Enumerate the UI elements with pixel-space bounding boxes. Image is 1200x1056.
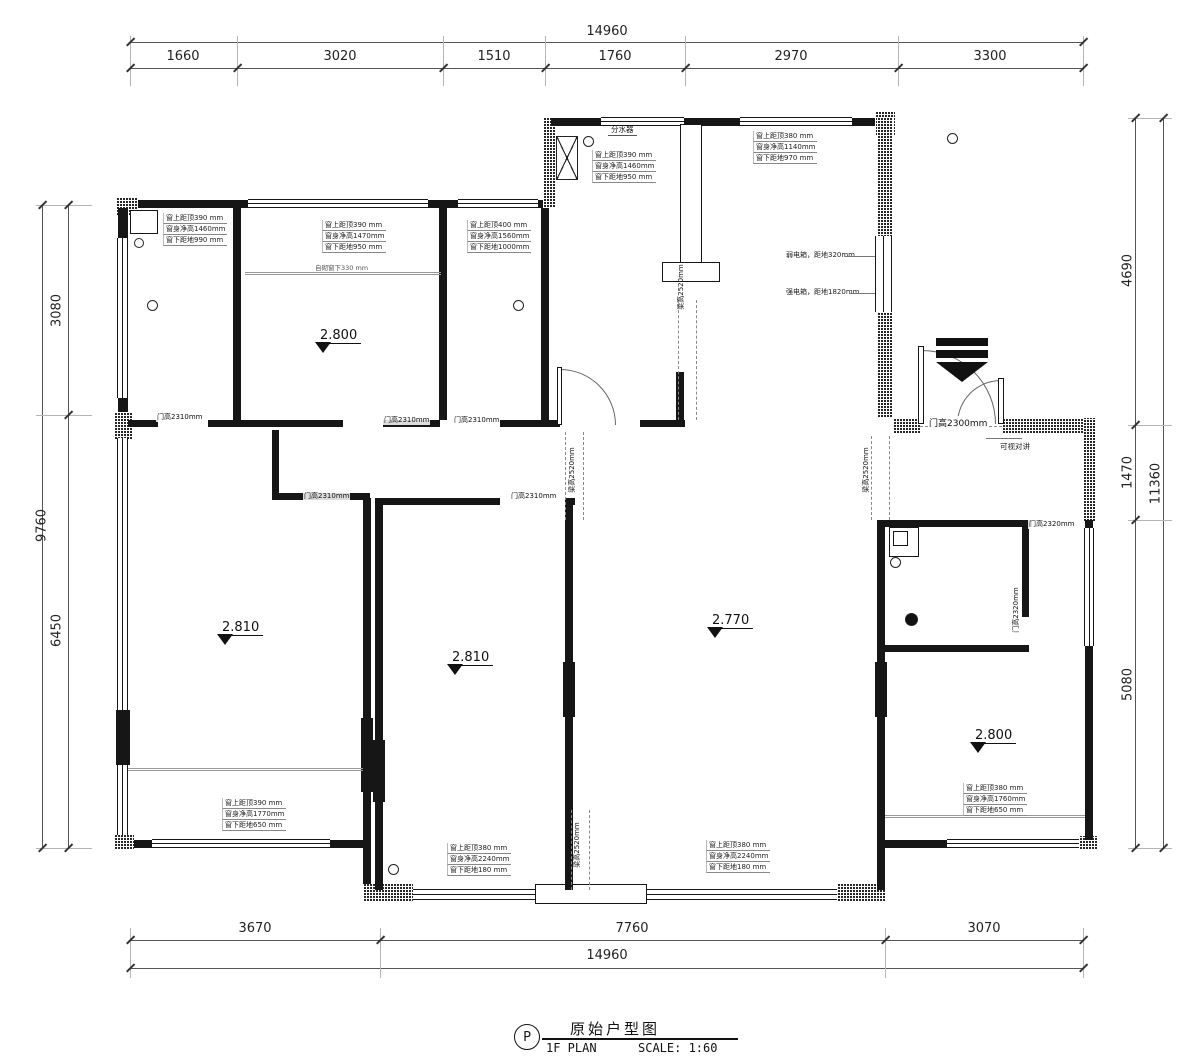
window-bedroom-bottom xyxy=(947,839,1081,848)
wall-hallway xyxy=(640,420,685,427)
note-line: 窗身净高1560mm xyxy=(467,231,531,242)
ext-line xyxy=(237,36,238,86)
note-line: 窗上距顶400 mm xyxy=(467,220,531,231)
window-mid-bottom-2 xyxy=(647,889,837,900)
note-line: 窗下距地650 mm xyxy=(222,820,286,831)
light-fixture-icon xyxy=(513,300,524,311)
wall-kitchen-left xyxy=(543,118,555,208)
beam-dash xyxy=(678,300,679,420)
wall-hallway xyxy=(208,420,343,427)
note-line: 窗下距地180 mm xyxy=(447,865,511,876)
wall-pier xyxy=(361,718,373,792)
ext-line xyxy=(36,205,92,206)
wall-bedroom-left2 xyxy=(877,717,885,840)
wall-bedroom-left xyxy=(877,520,885,662)
dim-bottom-2: 7760 xyxy=(615,921,648,936)
kitchen-door-leaf xyxy=(557,367,562,425)
wall-hallway xyxy=(500,420,560,427)
note-line: 窗上距顶380 mm xyxy=(753,131,817,142)
level-marker-lowleft: 2.810 xyxy=(220,620,263,635)
dim-bottom-total: 14960 xyxy=(586,948,627,963)
window-note-lowleft: 窗上距顶390 mm 窗身净高1770mm 窗下距地650 mm xyxy=(222,798,286,831)
wall-top xyxy=(428,200,458,208)
note-line: 窗上距顶390 mm xyxy=(163,213,227,224)
dim-line-top-total xyxy=(130,42,1083,43)
note-line: 窗身净高2240mm xyxy=(706,851,770,862)
strong-box-note: 强电箱，距地1820mm xyxy=(786,287,859,297)
level-marker-living: 2.770 xyxy=(710,613,753,628)
sill-note: 自砌窗下330 mm xyxy=(315,262,368,272)
dim-top-5: 2970 xyxy=(774,49,807,64)
window-mid-bottom-1 xyxy=(413,889,535,900)
wall-lowleft-right2 xyxy=(363,792,371,848)
kitchen-door-arc xyxy=(560,369,616,425)
level-triangle-icon xyxy=(970,742,986,753)
wall-midroom-top2 xyxy=(565,498,575,505)
wall-pier xyxy=(875,662,887,717)
note-line: 窗身净高1140mm xyxy=(753,142,817,153)
dim-top-3: 1510 xyxy=(477,49,510,64)
entry-door-leaf-left xyxy=(918,346,924,424)
wall-left-pier xyxy=(116,710,130,765)
window-lowleft-left xyxy=(117,438,128,710)
note-line: 窗下距地990 mm xyxy=(163,235,227,246)
plan-label: 1F PLAN xyxy=(546,1041,597,1055)
leader-line xyxy=(986,438,1022,439)
wall-pier xyxy=(373,740,385,802)
entry-arrow-bar xyxy=(936,338,988,346)
door-note-entry: 门高2300mm xyxy=(928,416,988,429)
ext-line xyxy=(898,36,899,86)
wall-bottom-right xyxy=(885,840,947,848)
wall-top-kitchen xyxy=(551,118,601,126)
level-triangle-icon xyxy=(707,627,723,638)
light-fixture-icon xyxy=(947,133,958,144)
pier-bottom-mid xyxy=(535,884,647,904)
window-note-bedroom: 窗上距顶380 mm 窗身净高1760mm 窗下距地650 mm xyxy=(963,783,1027,816)
leader-line xyxy=(850,293,875,294)
title-badge: P xyxy=(514,1024,540,1050)
dim-bottom-3: 3070 xyxy=(967,921,1000,936)
window-note-bed2: 窗上距顶390 mm 窗身净高1470mm 窗下距地950 mm xyxy=(322,220,386,253)
manifold-icon xyxy=(556,136,578,180)
window-bed1-left xyxy=(117,238,128,398)
window-note-mid1: 窗上距顶380 mm 窗身净高2240mm 窗下距地180 mm xyxy=(447,843,511,876)
note-line: 窗身净高2240mm xyxy=(447,854,511,865)
wall-right-entry xyxy=(1083,418,1095,522)
note-line: 窗下距地650 mm xyxy=(963,805,1027,816)
note-line: 窗上距顶380 mm xyxy=(963,783,1027,794)
ext-line xyxy=(36,415,92,416)
dim-top-2: 3020 xyxy=(323,49,356,64)
pier-bed1-corner xyxy=(130,210,158,234)
light-fixture-icon xyxy=(134,238,144,248)
window-note-bed1: 窗上距顶390 mm 窗身净高1460mm 窗下距地990 mm xyxy=(163,213,227,246)
ext-line xyxy=(130,928,131,978)
note-line: 窗上距顶380 mm xyxy=(706,840,770,851)
bath-fixture-icon xyxy=(890,557,901,568)
beam-note-4: 梁高2520mm xyxy=(572,817,582,873)
ext-line xyxy=(1083,928,1084,978)
ext-line xyxy=(1083,36,1084,86)
wall-hallway xyxy=(128,420,158,427)
wall-corner-bl xyxy=(114,835,134,850)
level-marker-bedroom: 2.800 xyxy=(973,728,1016,743)
beam-note-1: 梁高2520mm xyxy=(676,259,686,315)
manifold-label: 分水器 xyxy=(608,124,637,136)
ext-line xyxy=(545,36,546,86)
beam-dash xyxy=(871,436,872,520)
beam-dash xyxy=(589,810,590,890)
door-note-1: 门高2310mm xyxy=(156,412,203,422)
beam-dash xyxy=(696,300,697,420)
floor-plan-canvas: 14960 1660 3020 1510 1760 2970 3300 3670… xyxy=(0,0,1200,1056)
beam-dash xyxy=(565,432,566,520)
note-line: 窗下距地950 mm xyxy=(592,172,656,183)
door-note-2: 门高2310mm xyxy=(383,415,430,425)
window-note-hall: 窗上距顶380 mm 窗身净高1140mm 窗下距地970 mm xyxy=(753,131,817,164)
ext-line xyxy=(36,848,92,849)
bath-drain-icon xyxy=(905,613,918,626)
note-line: 窗下距地180 mm xyxy=(706,862,770,873)
window-lowleft-left2 xyxy=(117,765,128,837)
wall-midroom-left2 xyxy=(375,802,383,890)
column-pier xyxy=(680,124,702,268)
column-pier-foot xyxy=(662,262,720,282)
wall-bed1-bed2 xyxy=(233,208,241,420)
level-marker-bed2: 2.800 xyxy=(318,328,361,343)
wall-top-bed1 xyxy=(138,200,248,208)
light-fixture-icon xyxy=(388,864,399,875)
light-fixture-icon xyxy=(147,300,158,311)
dim-right-2: 1470 xyxy=(1121,453,1136,493)
drawing-title: 原始户型图 xyxy=(570,1018,660,1039)
wall-step xyxy=(877,840,885,890)
window-right-upper xyxy=(875,236,892,312)
note-line: 窗身净高1470mm xyxy=(322,231,386,242)
wall-room3-kitchen xyxy=(541,208,549,420)
wall-bathroom-bottom xyxy=(885,645,1029,652)
wall-entry-left xyxy=(893,418,920,434)
ext-line xyxy=(380,928,381,978)
note-line: 窗身净高1760mm xyxy=(963,794,1027,805)
dim-top-1: 1660 xyxy=(166,49,199,64)
note-line: 窗上距顶390 mm xyxy=(592,150,656,161)
dim-top-6: 3300 xyxy=(973,49,1006,64)
dim-right-total: 11360 xyxy=(1149,459,1164,509)
wall-midroom-left xyxy=(375,505,383,740)
note-line: 窗下距地970 mm xyxy=(753,153,817,164)
level-marker-midroom: 2.810 xyxy=(450,650,493,665)
ext-line xyxy=(885,928,886,978)
scale-label: SCALE: 1:60 xyxy=(638,1041,717,1055)
level-triangle-icon xyxy=(217,634,233,645)
level-triangle-icon xyxy=(447,664,463,675)
dim-top-total: 14960 xyxy=(586,24,627,39)
beam-dash xyxy=(889,436,890,520)
dim-top-4: 1760 xyxy=(598,49,631,64)
wall-pier xyxy=(563,662,575,717)
window-bed2-top xyxy=(248,199,428,208)
note-line: 窗身净高1770mm xyxy=(222,809,286,820)
dim-bottom-1: 3670 xyxy=(238,921,271,936)
ext-line xyxy=(130,36,131,86)
door-note-5: 门高2310mm xyxy=(510,491,557,501)
wall-midroom-top xyxy=(375,498,500,505)
note-line: 窗下距地1000mm xyxy=(467,242,531,253)
entry-arrow-bar xyxy=(936,350,988,358)
ext-line xyxy=(685,36,686,86)
dim-line-left-segments xyxy=(68,205,69,848)
level-triangle-icon xyxy=(315,342,331,353)
dim-right-1: 4690 xyxy=(1121,251,1136,291)
wall-l-vert xyxy=(272,430,279,500)
dim-line-bottom-segments xyxy=(130,940,1083,941)
note-line: 窗身净高1460mm xyxy=(592,161,656,172)
window-bedroom-right xyxy=(1084,528,1094,646)
wall-midroom-right xyxy=(565,505,573,662)
wall-bottom xyxy=(134,840,152,848)
note-line: 窗上距顶380 mm xyxy=(447,843,511,854)
dim-right-3: 5080 xyxy=(1121,665,1136,705)
beam-note-3: 梁高2520mm xyxy=(861,442,871,498)
window-note-mid2: 窗上距顶380 mm 窗身净高2240mm 窗下距地180 mm xyxy=(706,840,770,873)
shower-corner-inner xyxy=(893,531,908,546)
wall-bathroom-right xyxy=(1022,527,1029,617)
note-line: 窗身净高1460mm xyxy=(163,224,227,235)
door-note-3: 门高2310mm xyxy=(453,415,500,425)
light-fixture-icon xyxy=(583,136,594,147)
door-note-4: 门高2310mm xyxy=(303,491,350,501)
note-line: 窗上距顶390 mm xyxy=(322,220,386,231)
window-note-room3: 窗上距顶400 mm 窗身净高1560mm 窗下距地1000mm xyxy=(467,220,531,253)
dim-left-2: 6450 xyxy=(50,611,65,651)
ext-line xyxy=(443,36,444,86)
wall-bed2-room3 xyxy=(439,208,447,420)
dim-left-total: 9760 xyxy=(35,506,50,546)
dim-left-1: 3080 xyxy=(50,291,65,331)
sill-line-lowleft xyxy=(128,768,363,771)
wall-corner xyxy=(363,884,413,902)
beam-dash xyxy=(583,432,584,520)
dim-line-top-segments xyxy=(130,68,1083,69)
entry-door-leaf-right xyxy=(998,378,1004,424)
window-lowleft-bottom xyxy=(152,839,330,848)
note-line: 窗上距顶390 mm xyxy=(222,798,286,809)
weak-box-note: 弱电箱，距地320mm xyxy=(786,250,855,260)
wall-lowleft-right xyxy=(363,498,371,718)
door-note-bath-b: 门高2320mm xyxy=(1011,582,1021,638)
note-line: 窗下距地950 mm xyxy=(322,242,386,253)
dim-line-bottom-total xyxy=(130,968,1083,969)
window-hall-top xyxy=(740,117,852,126)
window-note-kitchen: 窗上距顶390 mm 窗身净高1460mm 窗下距地950 mm xyxy=(592,150,656,183)
sill-line-bed2 xyxy=(245,272,441,275)
intercom-label: 可视对讲 xyxy=(1000,441,1030,452)
wall-entry-right xyxy=(1002,418,1095,434)
wall-bedroom-top xyxy=(885,520,1032,527)
beam-note-2: 梁高2520mm xyxy=(567,442,577,498)
title-underline xyxy=(542,1038,738,1040)
wall-top xyxy=(852,118,877,126)
entry-arrow-icon xyxy=(936,362,988,382)
wall-left xyxy=(118,208,128,238)
window-room3-top xyxy=(458,199,538,208)
door-note-bath-a: 门高2320mm xyxy=(1028,519,1075,529)
leader-line xyxy=(845,256,875,257)
